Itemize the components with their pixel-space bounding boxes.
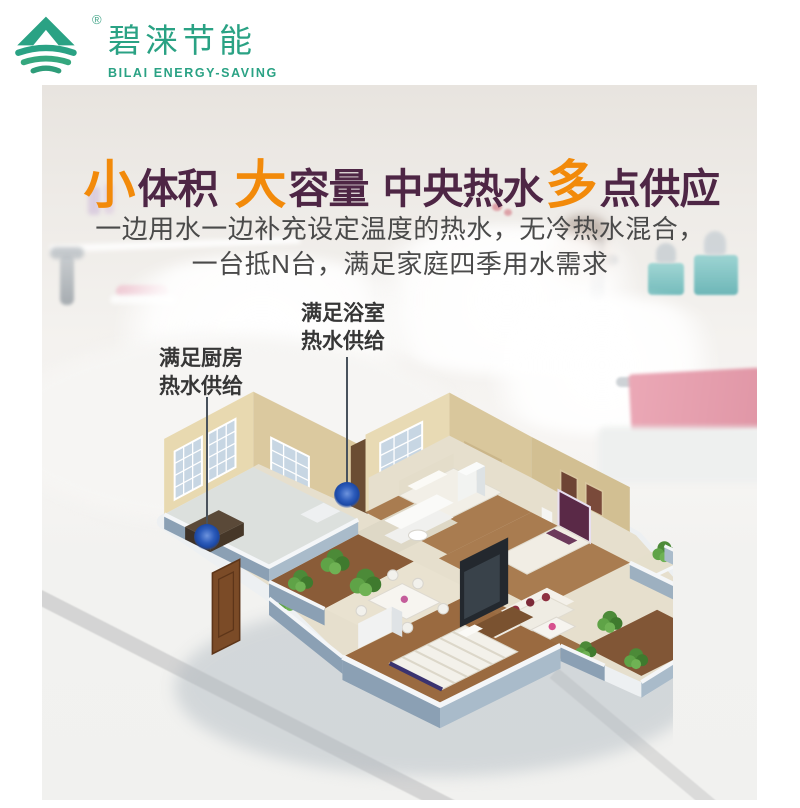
headline-accent: 多 [546,157,597,215]
floorplan-illustration [143,378,673,808]
promo-banner: { "brand": { "logo_zh": "碧涞节能", "logo_en… [0,0,800,800]
headline-accent: 大 [234,157,285,215]
logo-registered-mark: ® [92,12,102,27]
callout-bathroom-line2: 热水供给 [301,328,385,356]
callout-bathroom-line1: 满足浴室 [301,300,385,328]
callout-kitchen-line1: 满足厨房 [159,345,243,373]
headline-text: 体积 [137,166,217,212]
callout-kitchen-leader-line [206,397,208,527]
headline-accent: 小 [83,157,134,215]
logo-text-en: BILAI ENERGY-SAVING [108,66,278,80]
callout-kitchen-label: 满足厨房 热水供给 [159,345,243,401]
entrance-door [212,559,239,653]
logo-text-zh: 碧涞节能 [108,14,278,62]
hot-water-point-bathroom [334,482,360,508]
headline-text: 容量 [289,166,369,212]
brand-logo: ® 碧涞节能 BILAI ENERGY-SAVING [12,6,278,80]
callout-bathroom-leader-line [346,357,348,485]
callout-kitchen-line2: 热水供给 [159,373,243,401]
hot-water-point-kitchen [194,524,220,550]
headline: 小体积大容量中央热水多点供应 [0,143,800,218]
subtitle-line2: 一台抵N台，满足家庭四季用水需求 [0,247,800,282]
mountain-wave-icon [12,6,82,74]
headline-text: 中央热水 [383,166,543,212]
headline-text: 点供应 [600,166,720,212]
subtitle-line1: 一边用水一边补充设定温度的热水，无冷热水混合， [0,212,800,247]
subtitle: 一边用水一边补充设定温度的热水，无冷热水混合， 一台抵N台，满足家庭四季用水需求 [0,212,800,282]
callout-bathroom-label: 满足浴室 热水供给 [301,300,385,356]
header: ® 碧涞节能 BILAI ENERGY-SAVING [0,0,800,85]
